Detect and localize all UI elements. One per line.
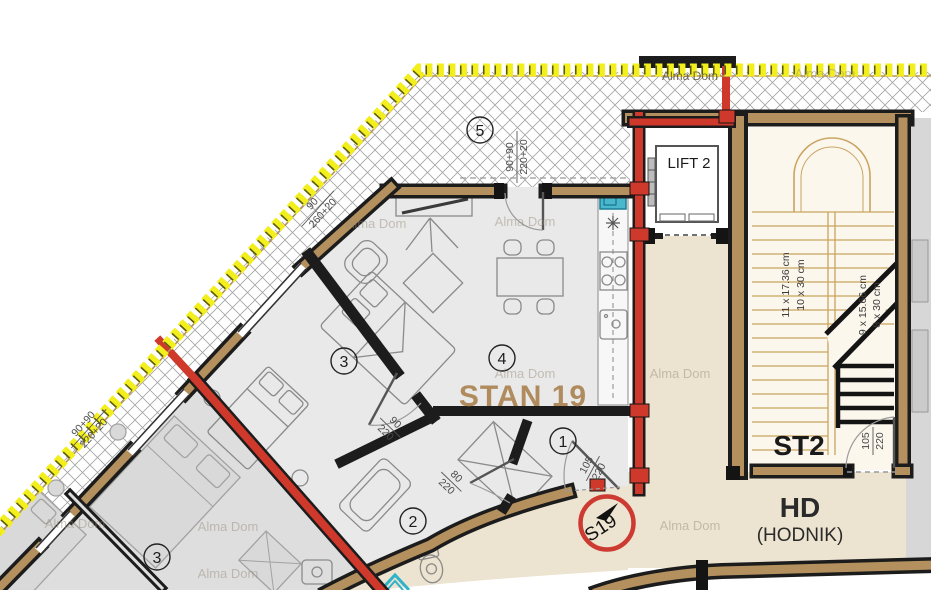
room-number: 5 bbox=[476, 123, 485, 140]
room-number: 2 bbox=[409, 514, 418, 531]
kitchen-star-symbol bbox=[606, 216, 620, 230]
room-number: 3 bbox=[153, 550, 162, 567]
watermark: Alma Dom bbox=[495, 366, 556, 381]
corridor-label: HD bbox=[780, 492, 820, 523]
lift-label: LIFT 2 bbox=[667, 155, 710, 172]
stairwell-label: ST2 bbox=[773, 430, 824, 461]
floor-plan: 5 4 3 2 1 3 STAN 19 LIFT 2 ST2 HD (HODNI… bbox=[0, 0, 931, 590]
watermark: Alma Dom bbox=[45, 516, 106, 531]
watermark: Alma Dom bbox=[198, 566, 259, 581]
room-number: 1 bbox=[559, 434, 568, 451]
neighbor-nightstand bbox=[48, 480, 64, 496]
stair-dim-upper-treads: 10 x 30 cm bbox=[795, 259, 807, 311]
floor-plan-drawing: 5 4 3 2 1 3 STAN 19 LIFT 2 ST2 HD (HODNI… bbox=[0, 0, 931, 590]
watermark: Alma Dom bbox=[198, 519, 259, 534]
apartment-title: STAN 19 bbox=[459, 380, 587, 413]
watermark: Alma Dom bbox=[346, 216, 407, 231]
stair-dim-lower-risers: 9 x 15.66 cm bbox=[857, 275, 869, 335]
corridor-sublabel: (HODNIK) bbox=[757, 525, 844, 546]
stair-dim-upper-risers: 11 x 17.36 cm bbox=[780, 252, 792, 317]
watermark: Alma Dom bbox=[795, 66, 856, 81]
neighbor-nightstand bbox=[110, 424, 126, 440]
svg-text:220+20: 220+20 bbox=[518, 139, 530, 174]
watermark: Alma Dom bbox=[660, 518, 721, 533]
room-number: 3 bbox=[340, 354, 349, 371]
stair-dim-lower-treads: 8 x 30 cm bbox=[871, 282, 883, 328]
svg-text:105: 105 bbox=[860, 432, 872, 450]
svg-text:220: 220 bbox=[874, 432, 886, 450]
svg-text:90+90: 90+90 bbox=[504, 142, 516, 172]
watermark: Alma Dom bbox=[662, 69, 718, 83]
watermark: Alma Dom bbox=[650, 366, 711, 381]
watermark: Alma Dom bbox=[495, 214, 556, 229]
